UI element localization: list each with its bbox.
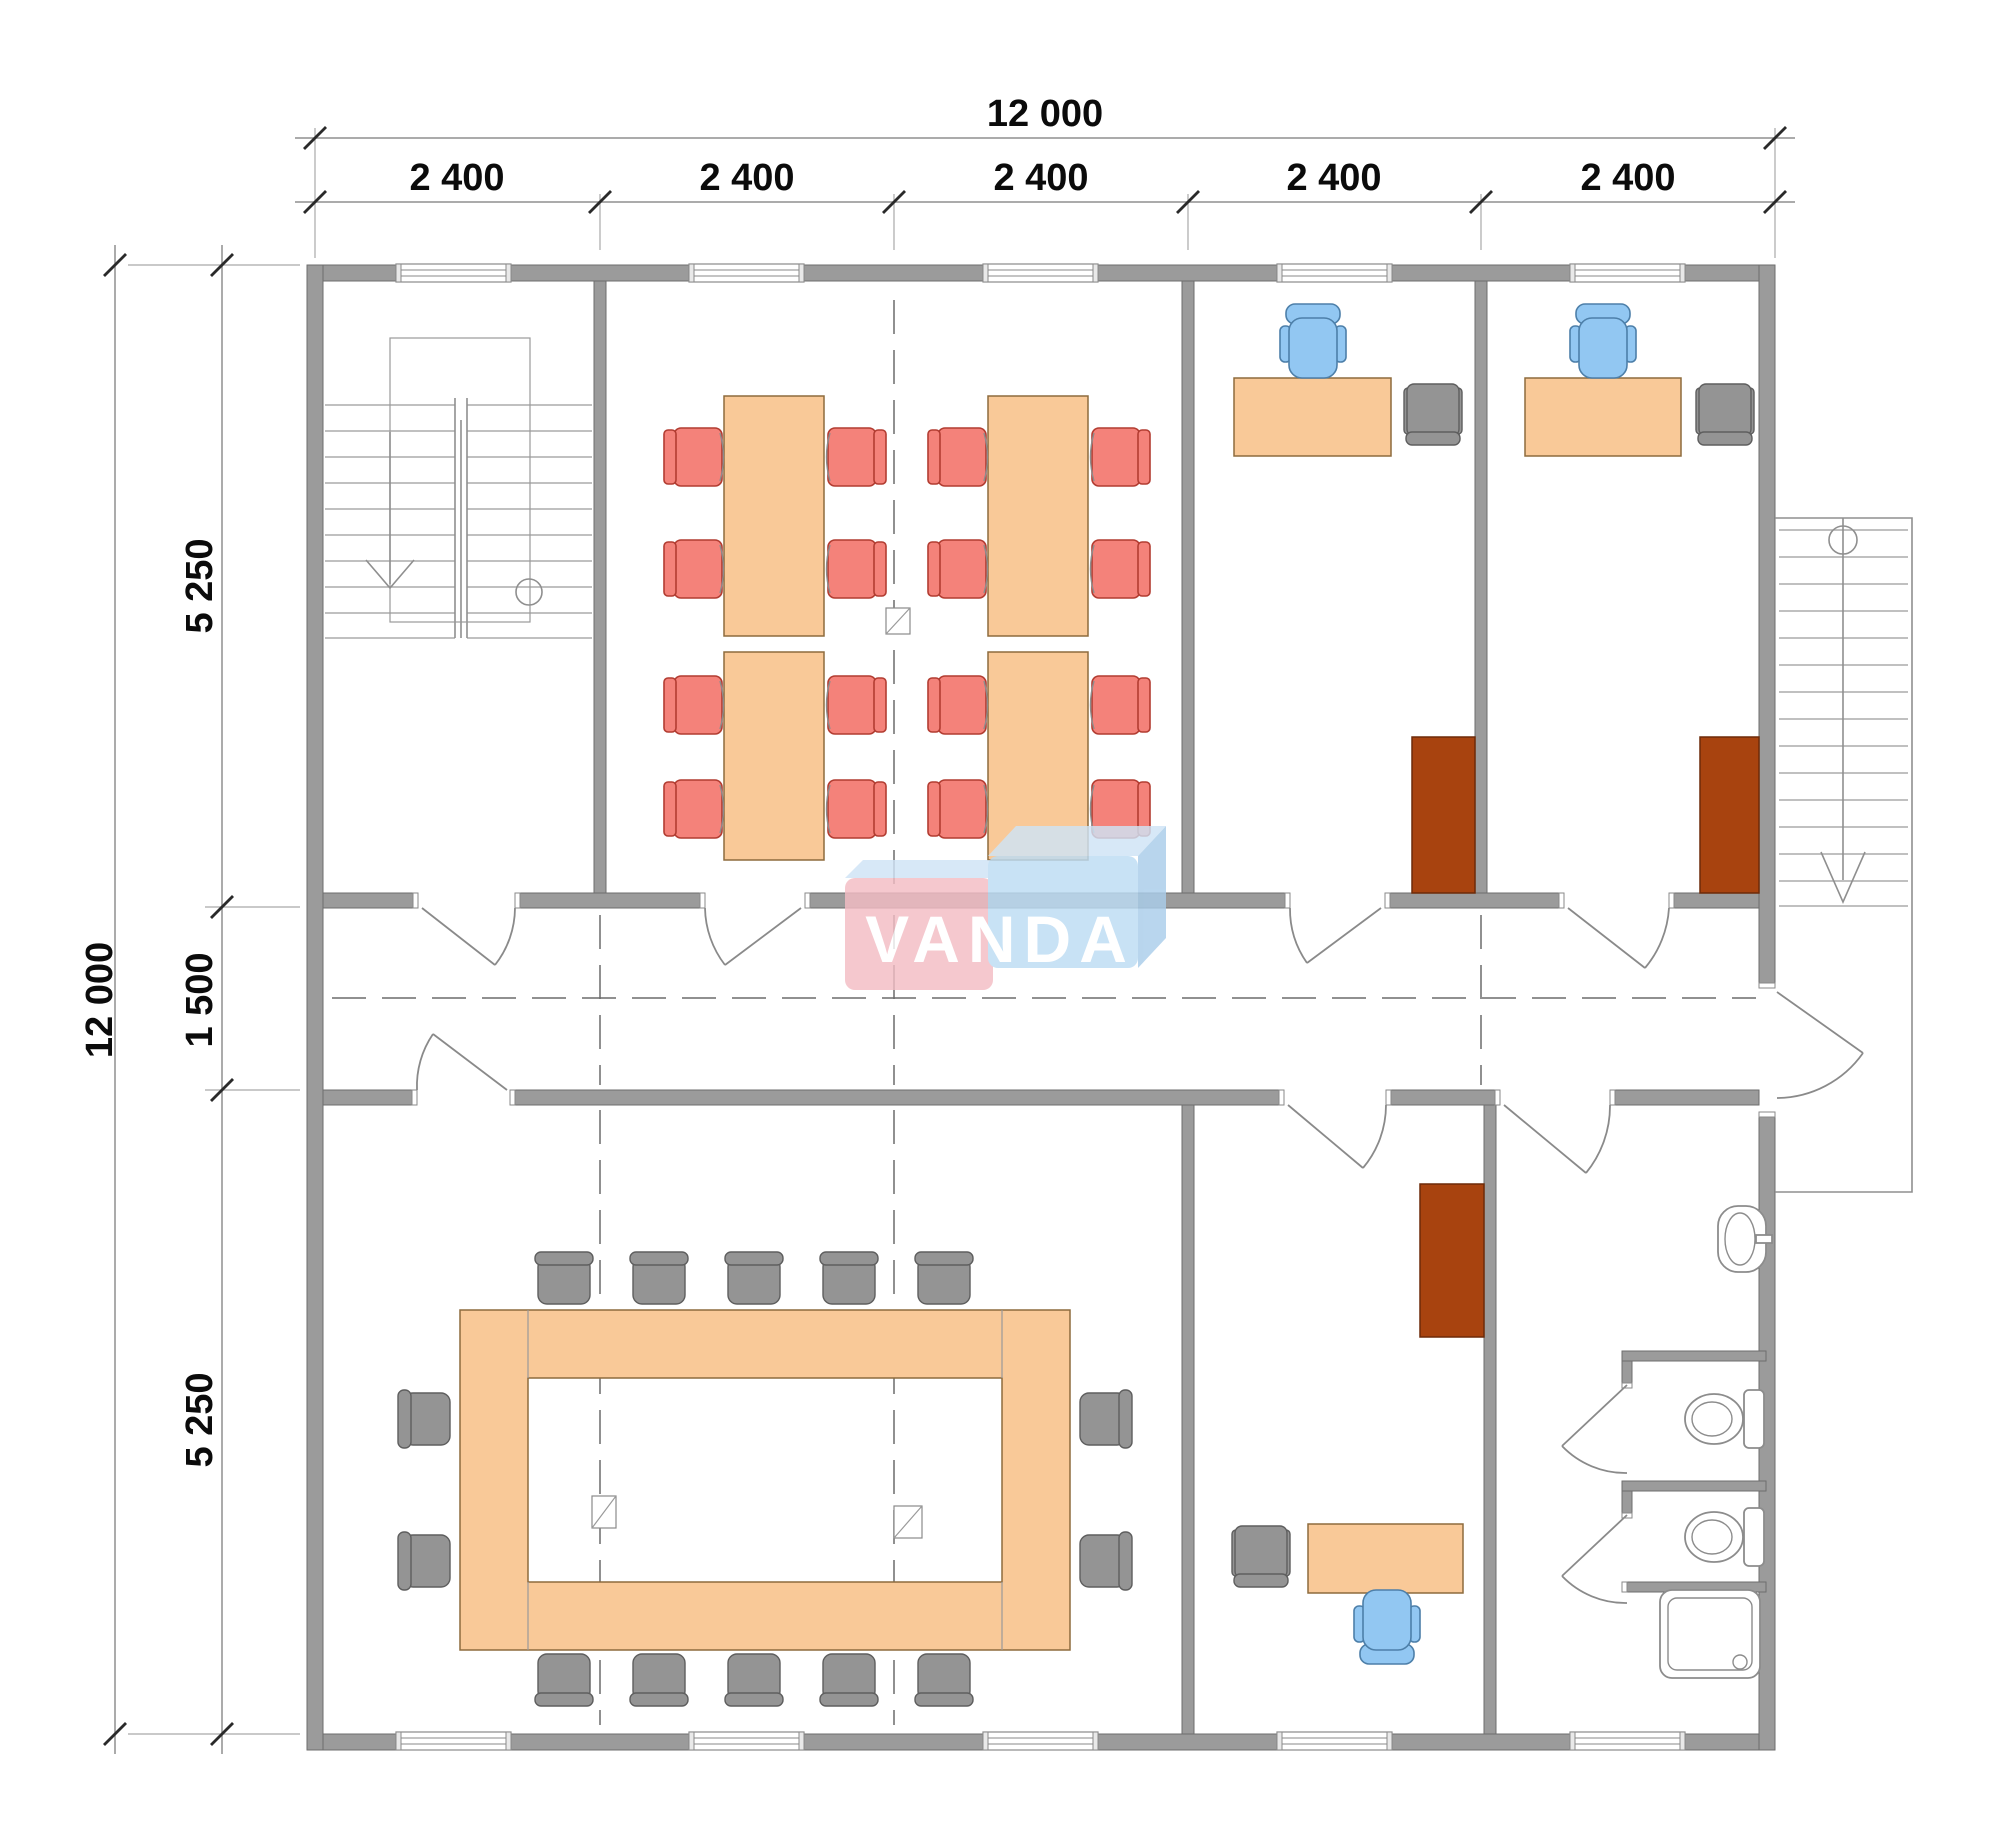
exterior-wall-left (307, 265, 323, 1750)
bathroom (1660, 1206, 1772, 1678)
external-staircase (1775, 518, 1912, 1192)
dining-table-3 (724, 652, 824, 860)
floor-plan-drawing: 12 000 2 400 2 400 2 400 2 400 2 400 12 … (0, 0, 2000, 1848)
sink (1718, 1206, 1772, 1272)
office-desk (1308, 1524, 1463, 1593)
dim-bay-5: 2 400 (1580, 157, 1675, 199)
column-symbol (894, 1506, 922, 1538)
cabinet (1700, 737, 1759, 893)
stall-divider-1 (1622, 1351, 1766, 1361)
wall-dining-office1 (1182, 281, 1194, 893)
dim-bay-4: 2 400 (1286, 157, 1381, 199)
stair-down-arrow (1821, 518, 1865, 902)
door-bathroom (1504, 1105, 1610, 1173)
door-manager-office (1288, 1105, 1386, 1168)
dining-table-2 (988, 396, 1088, 636)
cabinet (1412, 737, 1475, 893)
stair-down-arrow (366, 432, 414, 588)
visitor-chair (1404, 384, 1462, 445)
office-desk (1234, 378, 1391, 456)
office-2 (1525, 304, 1759, 893)
conference-table (460, 1310, 1070, 1650)
wall-office1-office2 (1475, 281, 1487, 893)
dining-area (664, 396, 1150, 860)
door-office-2 (1568, 908, 1669, 968)
column-symbol (886, 608, 910, 634)
dim-row-2: 1 500 (179, 952, 221, 1047)
door-main-entrance (1777, 992, 1863, 1098)
wall-stair-dining (594, 281, 606, 893)
wall-conference-office (1182, 1105, 1194, 1734)
visitor-chair (1232, 1526, 1290, 1587)
stall-divider-2 (1622, 1481, 1766, 1491)
shower-tray (1660, 1590, 1760, 1678)
office-desk (1525, 378, 1681, 456)
toilet (1685, 1508, 1764, 1566)
dim-total-height: 12 000 (79, 942, 121, 1058)
dim-total-width: 12 000 (987, 93, 1103, 135)
conference-room (398, 1252, 1132, 1706)
dim-row-3: 5 250 (179, 1372, 221, 1467)
manager-office (1232, 1184, 1484, 1664)
executive-chair (1354, 1590, 1420, 1664)
floor-plan-page: 12 000 2 400 2 400 2 400 2 400 2 400 12 … (0, 0, 2000, 1848)
dim-bay-2: 2 400 (699, 157, 794, 199)
watermark-text: VANDA (865, 902, 1135, 976)
office-1 (1234, 304, 1475, 893)
dim-bay-3: 2 400 (993, 157, 1088, 199)
cabinet (1420, 1184, 1484, 1337)
internal-staircase (325, 338, 592, 638)
dim-row-1: 5 250 (179, 538, 221, 633)
door-stall-2 (1562, 1515, 1627, 1603)
column-symbol (592, 1496, 616, 1528)
dining-table-1 (724, 396, 824, 636)
wall-office-bathroom (1484, 1105, 1496, 1734)
door-stair-room (422, 908, 515, 965)
visitor-chair (1696, 384, 1754, 445)
toilet (1685, 1390, 1764, 1448)
dim-bay-1: 2 400 (409, 157, 504, 199)
executive-chair (1570, 304, 1636, 378)
executive-chair (1280, 304, 1346, 378)
door-conference-room (417, 1034, 507, 1090)
door-dining-room (705, 908, 801, 965)
exterior-wall-right-upper (1759, 265, 1775, 988)
vanda-watermark-logo: VANDA (845, 826, 1166, 990)
door-office-1 (1290, 908, 1381, 963)
door-stall-1 (1562, 1385, 1627, 1473)
